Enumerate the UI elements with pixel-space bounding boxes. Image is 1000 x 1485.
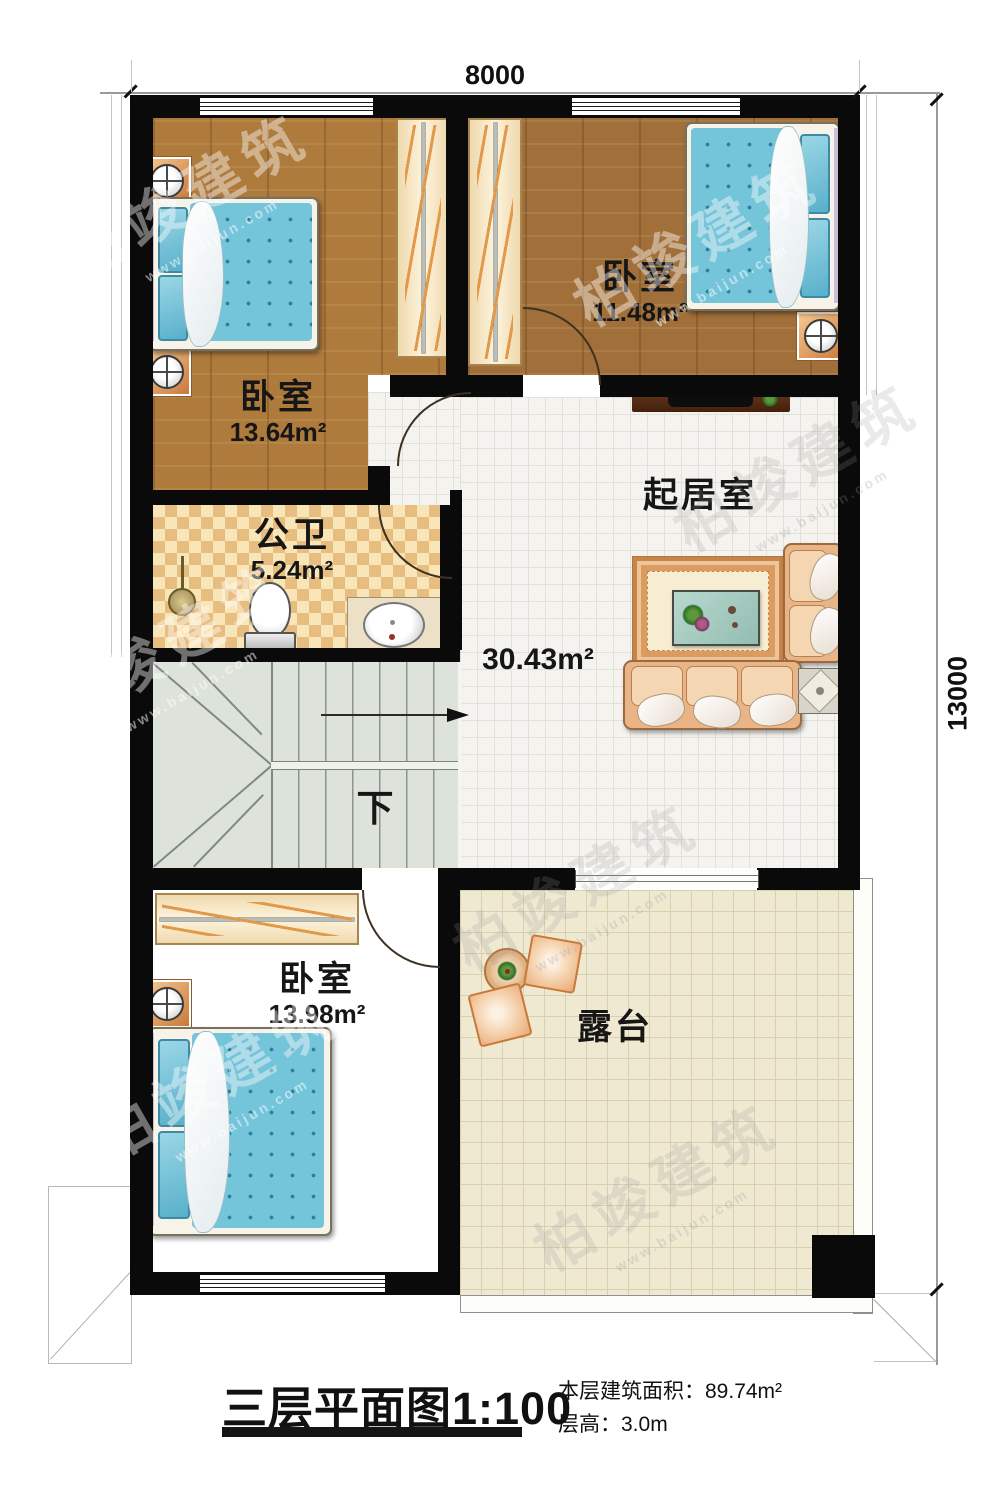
floor-drain-icon (168, 588, 196, 616)
title-stats: 本层建筑面积：89.74m² 层高：3.0m (558, 1376, 782, 1441)
label-living-room: 起居室 (590, 478, 810, 513)
stair-rail (271, 761, 458, 770)
label-bedroom-bottom: 卧室 13.98m² (207, 962, 427, 1027)
stairs-area (153, 662, 462, 868)
stair-winder-line-2 (153, 763, 274, 867)
bed-blanket (769, 126, 809, 308)
toilet-bowl (249, 582, 291, 638)
wardrobe-hangers (162, 902, 352, 936)
side-table-knob (816, 687, 824, 695)
floor-height-value: 3.0m (621, 1413, 668, 1436)
room-area: 11.48m² (530, 299, 750, 325)
flower-icon (694, 616, 710, 632)
wardrobe-top-right-bedroom (468, 118, 522, 366)
extension-line (859, 60, 860, 92)
stair-winder-line-4 (193, 794, 264, 867)
room-area: 30.43m² (458, 645, 618, 675)
extension-line (131, 60, 132, 92)
wall-bedroom-b-top (130, 868, 362, 890)
lamp-icon (150, 164, 184, 198)
sink-drain (390, 620, 395, 625)
eave-diagonal-right (873, 1299, 936, 1362)
wall-right (838, 95, 860, 890)
eave-line-right-2 (876, 95, 877, 395)
sofa-two-seat (783, 543, 844, 663)
stair-arrow-shaft (321, 714, 449, 716)
wall-bedroom-tr-bottom-right (600, 375, 860, 397)
eave-line-left-2 (121, 95, 122, 657)
label-bedroom-top-right: 卧室 11.48m² (530, 260, 750, 325)
stair-winder-line-3 (192, 662, 263, 735)
side-table (798, 668, 842, 714)
wardrobe-top-left-bedroom (396, 118, 450, 358)
wall-bathroom-top (130, 490, 378, 505)
wardrobe-hangers (477, 125, 513, 359)
wall-terrace-top-left (460, 868, 575, 890)
room-name: 起居室 (590, 478, 810, 513)
cup-icon (728, 606, 736, 614)
wall-left (130, 95, 153, 1295)
wall-bedroom-b-jamb (438, 868, 460, 890)
bed-top-left (148, 197, 319, 351)
wall-bathroom-top-jamb (450, 490, 462, 505)
terrace-chair (523, 934, 583, 994)
wardrobe-hangers (405, 125, 441, 351)
dimension-line-right (936, 92, 938, 1365)
window-top-left (200, 98, 373, 115)
door-arc-bedroom-bottom (362, 890, 440, 968)
sofa-three-seat (623, 660, 802, 730)
stairs-direction: 下 (340, 790, 410, 827)
room-area: 5.24m² (182, 557, 402, 583)
dimension-line-top (100, 92, 940, 94)
terrace-sliding-door (575, 870, 759, 888)
wall-terrace-top-right (757, 868, 860, 890)
floor-height-label: 层高： (558, 1413, 621, 1436)
eave-line-bottom-right (874, 1361, 936, 1362)
room-name: 公卫 (182, 518, 402, 553)
label-stairs-down: 下 (340, 790, 410, 827)
extension-line-bottom-right (875, 1293, 936, 1294)
label-bathroom: 公卫 5.24m² (182, 518, 402, 583)
eave-line-left-1 (111, 95, 112, 657)
room-name: 卧室 (530, 260, 750, 295)
room-area: 13.64m² (168, 419, 388, 445)
floor-area-label: 本层建筑面积： (558, 1380, 705, 1403)
dimension-right-value: 13000 (943, 634, 974, 754)
sink-basin (363, 602, 425, 648)
wall-between-bedrooms (446, 95, 468, 375)
sink-tap (389, 634, 395, 640)
stair-winder-line-1 (152, 662, 273, 766)
bed-blanket (184, 1031, 230, 1233)
floor-plan: 卧室 13.64m² 卧室 11.48m² 公卫 5.24m² 起居室 30.4… (0, 0, 1000, 1485)
lamp-icon (150, 987, 184, 1021)
wall-bedroom-b-right (438, 890, 460, 1295)
room-area: 13.98m² (207, 1001, 427, 1027)
label-terrace: 露台 (505, 1010, 725, 1045)
eave-line-right-1 (866, 95, 867, 395)
plant-flower (505, 969, 510, 974)
wall-bathroom-bottom (130, 648, 460, 662)
sink-counter (347, 597, 442, 650)
room-name: 露台 (505, 1010, 725, 1045)
dimension-top-value: 8000 (425, 60, 565, 91)
label-bedroom-top-left: 卧室 13.64m² (168, 380, 388, 445)
cup-icon (732, 622, 738, 628)
eave-lower-roof-left (48, 1186, 132, 1364)
title-underline (222, 1427, 522, 1437)
label-living-room-area: 30.43m² (458, 645, 618, 675)
window-bottom (200, 1275, 385, 1292)
bed-bottom (148, 1027, 332, 1236)
floor-area-value: 89.74m² (705, 1380, 782, 1403)
pillar (812, 1235, 875, 1298)
lamp-icon (804, 319, 838, 353)
coffee-table (672, 590, 760, 646)
room-name: 卧室 (168, 380, 388, 415)
bed-blanket (182, 201, 224, 347)
floor-height-row: 层高：3.0m (558, 1409, 782, 1442)
stair-arrow-head (447, 708, 469, 722)
room-name: 卧室 (207, 962, 427, 997)
window-top-right (572, 98, 740, 115)
floor-area-row: 本层建筑面积：89.74m² (558, 1376, 782, 1409)
wardrobe-bottom-bedroom (155, 893, 359, 945)
